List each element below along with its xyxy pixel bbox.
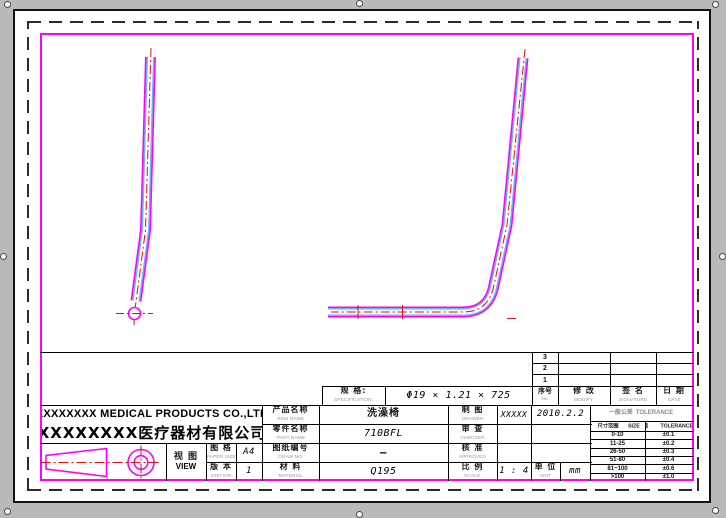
tolerance-size-header: 尺寸范围 SIZE bbox=[590, 421, 645, 431]
material-label: 材 料 MATERIAL bbox=[262, 462, 319, 481]
unit-value: mm bbox=[560, 462, 590, 481]
tolerance-row-value: ±0.6 bbox=[645, 464, 692, 473]
paper-size-label: 图 格 PAPER SIZE bbox=[206, 443, 236, 462]
edition-value: 1 bbox=[236, 462, 262, 481]
revision-row-2: 2 bbox=[532, 363, 558, 374]
tolerance-row-size: >100 bbox=[590, 473, 645, 481]
item-name-label: 产品名称 ITEM NAME bbox=[262, 405, 319, 424]
drawer-date: 2010.2.2 bbox=[531, 405, 590, 424]
paper-size-value: A4 bbox=[236, 443, 262, 462]
tolerance-row-value: ±0.2 bbox=[645, 439, 692, 448]
tolerance-row-size: 81~100 bbox=[590, 464, 645, 473]
spec-label: 规 格: SPECIFICATION: bbox=[322, 386, 385, 405]
tube-view-right bbox=[328, 49, 525, 319]
company-name-cn: XXXXXXXX医疗器材有限公司 bbox=[42, 422, 262, 443]
part-name-value: 710BFL bbox=[319, 424, 448, 443]
selection-handle-bottom-right[interactable] bbox=[712, 507, 719, 514]
item-name-value: 洗澡椅 bbox=[319, 405, 448, 424]
tolerance-row-size: 11-25 bbox=[590, 439, 645, 448]
draw-no-label: 图纸编号 DRAW NO bbox=[262, 443, 319, 462]
tolerance-title: 一般公差 TOLERANCE bbox=[590, 405, 692, 421]
tolerance-row-value: ±0.3 bbox=[645, 448, 692, 456]
selection-handle-bottom-left[interactable] bbox=[4, 508, 11, 515]
selection-handle-middle-right[interactable] bbox=[719, 253, 726, 260]
selection-handle-top-middle[interactable] bbox=[356, 0, 363, 7]
drawer-label: 制 图 DRAWER bbox=[448, 405, 497, 424]
draw-no-value: — bbox=[319, 443, 448, 462]
material-value: Q195 bbox=[319, 462, 448, 481]
tolerance-row-size: 26-50 bbox=[590, 448, 645, 456]
revision-row-3: 3 bbox=[532, 352, 558, 363]
drawer-name: XXXXX bbox=[497, 405, 531, 424]
tolerance-row-size: 0-10 bbox=[590, 431, 645, 439]
grid-line bbox=[40, 352, 694, 353]
tolerance-row-size: 51-80 bbox=[590, 456, 645, 464]
tolerance-row-value: ±0.4 bbox=[645, 456, 692, 464]
projection-symbol bbox=[41, 446, 162, 480]
checker-label: 审 查 CHECKER bbox=[448, 424, 497, 443]
tolerance-row-value: ±0.1 bbox=[645, 431, 692, 439]
unit-label: 单 位 UNIT bbox=[531, 462, 560, 481]
revision-row-1: 1 bbox=[532, 374, 558, 386]
revision-date-header: 日 期 DATE bbox=[656, 386, 692, 405]
view-label: 视 图 VIEW bbox=[166, 443, 206, 481]
revision-signature-header: 签 名 SIGNATURE bbox=[610, 386, 656, 405]
scale-label: 比 例 SCALE bbox=[448, 462, 497, 481]
scale-value: 1 : 4 bbox=[497, 462, 531, 481]
spec-value: Φ19 × 1.21 × 725 bbox=[385, 386, 532, 405]
revision-no-header: 序号 No. bbox=[532, 386, 558, 405]
tolerance-row-value: ±1.0 bbox=[645, 473, 692, 481]
selection-handle-top-right[interactable] bbox=[712, 1, 719, 8]
company-name-en: XXXXXXXX MEDICAL PRODUCTS CO.,LTD bbox=[42, 405, 262, 423]
selection-handle-top-left[interactable] bbox=[4, 1, 11, 8]
part-name-label: 零件名称 PART NAME bbox=[262, 424, 319, 443]
edition-label: 版 本 EDITION bbox=[206, 462, 236, 481]
approved-label: 核 准 APPROVED bbox=[448, 443, 497, 462]
tube-view-left bbox=[116, 48, 153, 325]
revision-modify-header: 修 改 MODIFY bbox=[558, 386, 610, 405]
tolerance-tol-header: 公差 TOLERANCE bbox=[645, 421, 692, 431]
drawing-sheet: XXXXXXXX MEDICAL PRODUCTS CO.,LTD XXXXXX… bbox=[0, 0, 726, 517]
cad-sheet-screenshot: { "colors":{"frame":"#ff00ff","tube_oute… bbox=[0, 0, 726, 517]
selection-handle-middle-left[interactable] bbox=[0, 253, 7, 260]
